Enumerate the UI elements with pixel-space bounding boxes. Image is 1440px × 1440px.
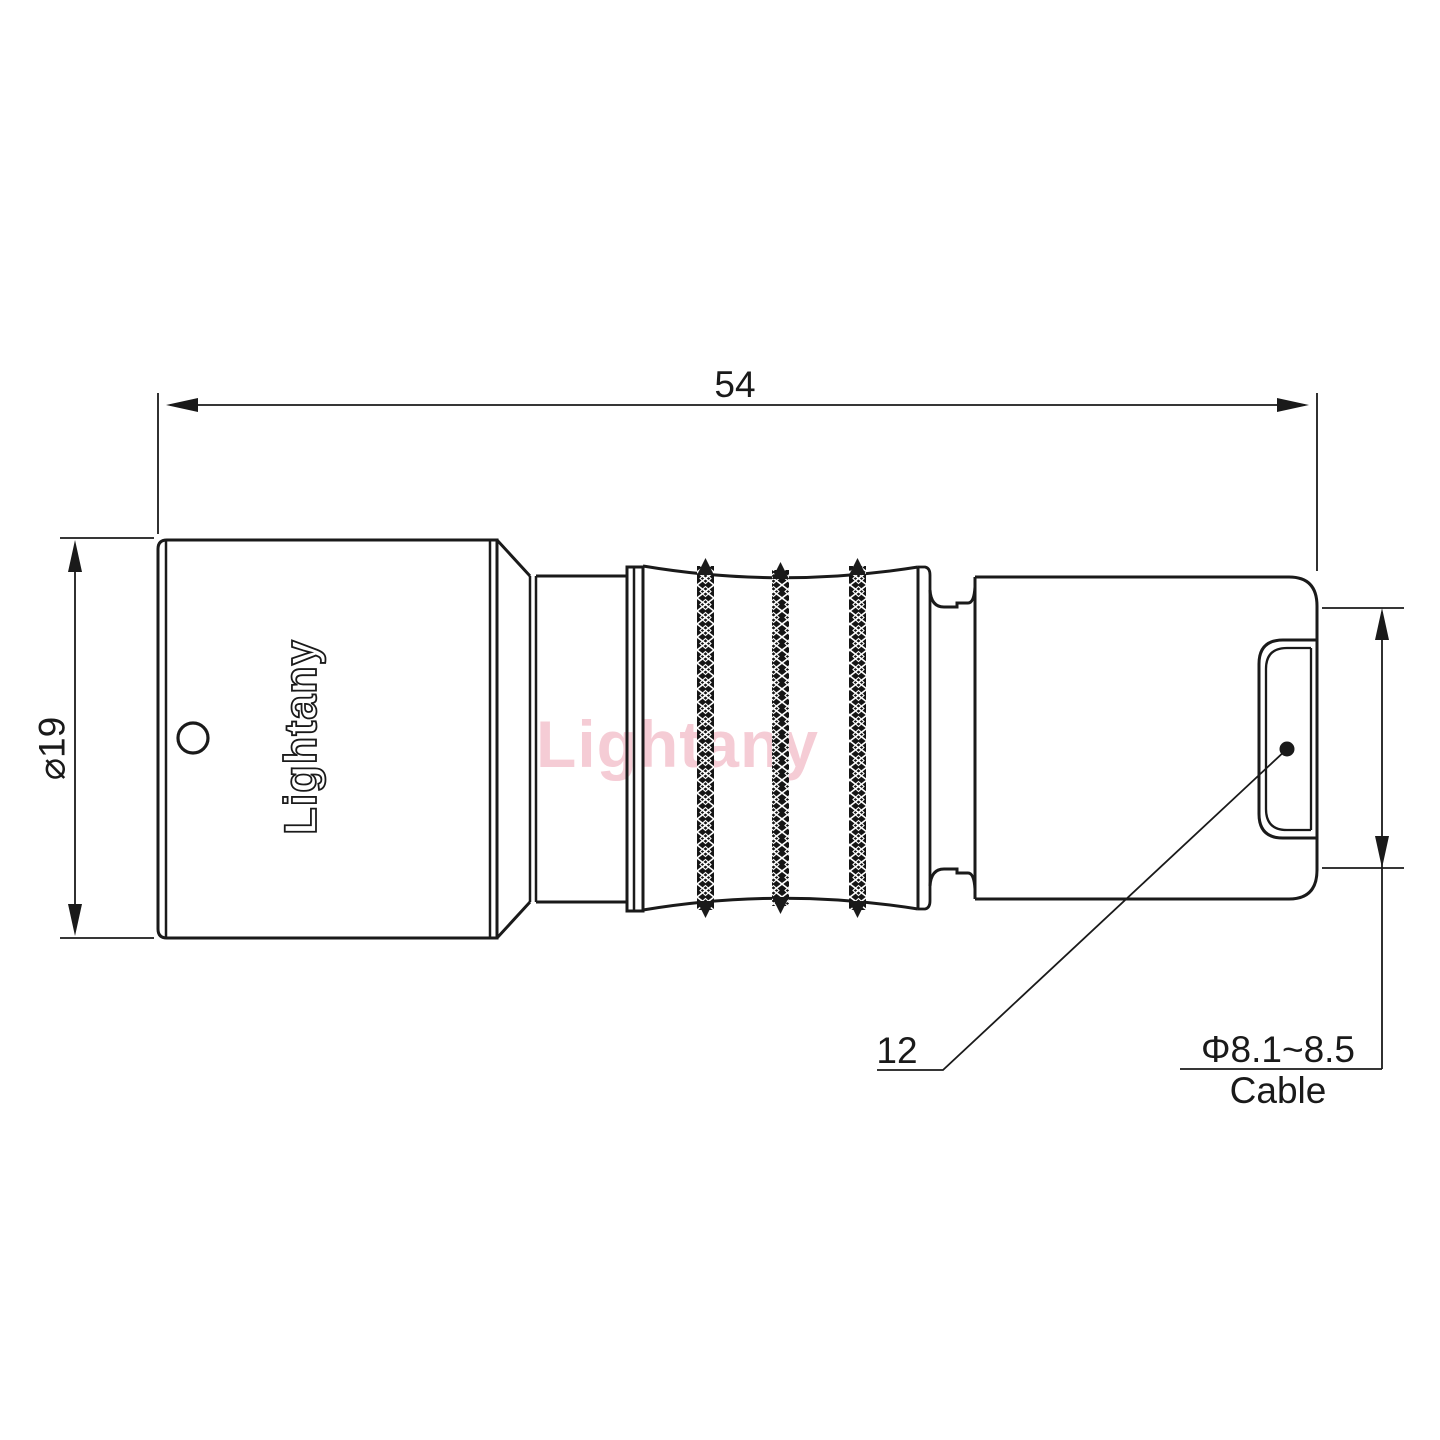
- technical-drawing-page: Lightany: [0, 0, 1440, 1440]
- body-diameter-label: ⌀19: [34, 687, 71, 811]
- end-cap: [918, 567, 930, 909]
- cable-word-label: Cable: [1228, 1072, 1328, 1109]
- coupling-sleeve: [530, 576, 627, 902]
- body-window-circle: [178, 723, 208, 753]
- connector-drawing: [0, 0, 1440, 1440]
- bushing-ref-label: 12: [867, 1032, 927, 1069]
- body-engraving-text: Lightany: [275, 627, 325, 847]
- dim-diameter: [60, 538, 154, 938]
- neck: [930, 587, 975, 889]
- cable-bushing: [1259, 640, 1317, 838]
- leader-line-12: [877, 749, 1287, 1070]
- knurl-band: [697, 558, 714, 918]
- dim-length: [158, 393, 1317, 571]
- front-body: [158, 540, 530, 938]
- knurl-band: [849, 558, 866, 918]
- cable-range-label: Φ8.1~8.5: [1196, 1031, 1360, 1068]
- overall-length-label: 54: [685, 366, 785, 403]
- knurl-bands: [697, 558, 866, 918]
- spacer-ring: [627, 567, 643, 911]
- knurl-band: [772, 562, 789, 914]
